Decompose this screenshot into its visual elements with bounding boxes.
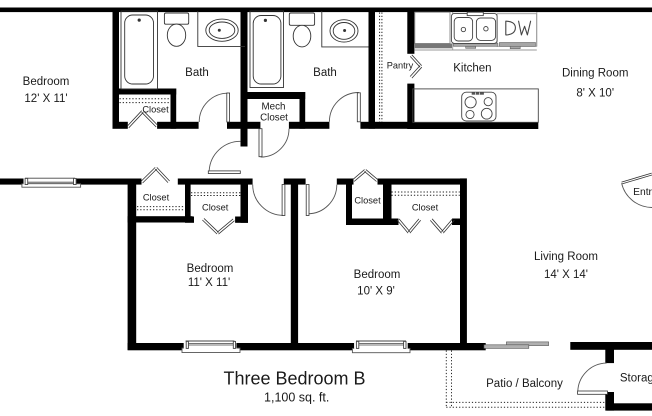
svg-text:Closet: Closet — [142, 105, 169, 115]
svg-text:10' X 9': 10' X 9' — [357, 286, 395, 298]
svg-text:Closet: Closet — [260, 113, 288, 124]
svg-text:Bedroom: Bedroom — [23, 76, 70, 88]
svg-text:Entry: Entry — [633, 187, 652, 198]
svg-text:Closet: Closet — [143, 192, 170, 202]
svg-text:Closet: Closet — [412, 202, 439, 212]
svg-text:Bath: Bath — [185, 67, 209, 79]
svg-text:Mech: Mech — [262, 102, 286, 113]
svg-text:Storage: Storage — [620, 373, 652, 385]
svg-text:Bedroom: Bedroom — [354, 269, 401, 281]
svg-text:12' X 11': 12' X 11' — [24, 93, 67, 105]
svg-text:Closet: Closet — [354, 196, 381, 206]
svg-text:Pantry: Pantry — [387, 61, 414, 71]
svg-text:Dining Room: Dining Room — [562, 68, 628, 80]
svg-text:8' X 10': 8' X 10' — [576, 88, 614, 100]
svg-text:11' X 11': 11' X 11' — [188, 277, 230, 289]
svg-text:Patio / Balcony: Patio / Balcony — [486, 378, 563, 390]
svg-text:14' X 14': 14' X 14' — [544, 269, 588, 281]
svg-text:Living Room: Living Room — [534, 251, 598, 263]
svg-text:Closet: Closet — [202, 202, 229, 212]
svg-text:Kitchen: Kitchen — [453, 63, 491, 75]
svg-text:Bedroom: Bedroom — [187, 263, 234, 275]
svg-text:Bath: Bath — [313, 67, 337, 79]
svg-text:Three Bedroom B: Three Bedroom B — [223, 368, 365, 388]
svg-text:1,100 sq. ft.: 1,100 sq. ft. — [264, 391, 329, 405]
